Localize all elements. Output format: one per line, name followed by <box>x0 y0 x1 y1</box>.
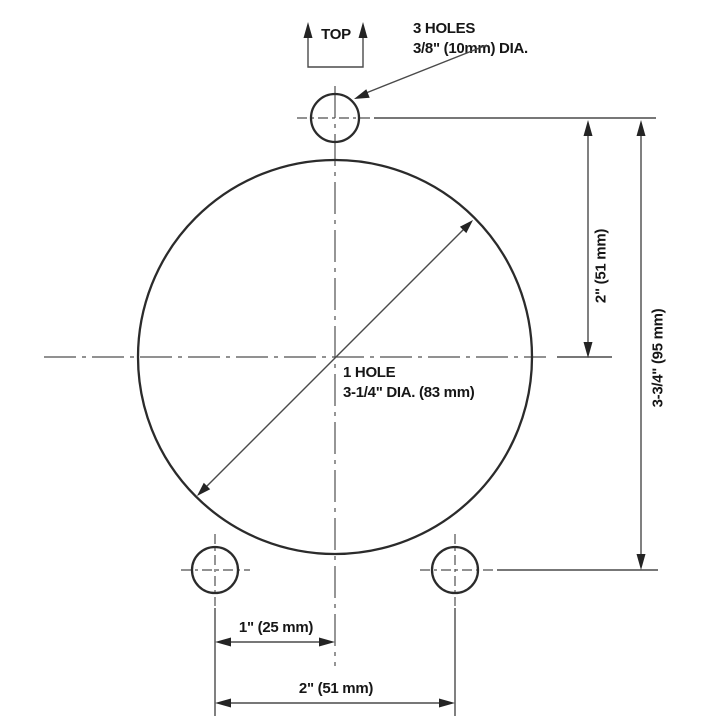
technical-drawing-page: TOP 3 HOLES 3/8" (10mm) DIA. 1 HOLE 3-1/… <box>0 0 720 720</box>
dim-label-horizontal-outer: 2" (51 mm) <box>299 680 373 697</box>
center-callout-line2: 3-1/4" DIA. (83 mm) <box>343 384 475 401</box>
dim-arrow-right-inner-icon <box>319 638 335 647</box>
dim-arrow-up-outer-icon <box>637 120 646 136</box>
leader-arrow-icon <box>354 89 370 99</box>
dim-arrow-up-inner-icon <box>584 120 593 136</box>
top-right-arrow-icon <box>359 22 368 38</box>
drilling-template-diagram: TOP 3 HOLES 3/8" (10mm) DIA. 1 HOLE 3-1/… <box>0 0 720 720</box>
top-left-arrow-icon <box>304 22 313 38</box>
centerlines <box>44 86 546 666</box>
dim-arrow-left-outer-icon <box>215 699 231 708</box>
top-label: TOP <box>321 26 351 43</box>
dim-arrow-right-outer-icon <box>439 699 455 708</box>
dim-label-vertical-outer: 3-3/4" (95 mm) <box>649 308 666 407</box>
dim-arrow-left-inner-icon <box>215 638 231 647</box>
dim-label-horizontal-inner: 1" (25 mm) <box>239 619 313 636</box>
small-holes-callout-line1: 3 HOLES <box>413 20 475 37</box>
center-callout-line1: 1 HOLE <box>343 364 396 381</box>
top-orientation-marker: TOP <box>304 22 368 67</box>
dim-arrow-down-outer-icon <box>637 554 646 570</box>
small-holes-callout: 3 HOLES 3/8" (10mm) DIA. <box>354 20 528 99</box>
dim-label-vertical-inner: 2" (51 mm) <box>592 229 609 303</box>
small-holes-callout-line2: 3/8" (10mm) DIA. <box>413 40 528 57</box>
center-hole-callout: 1 HOLE 3-1/4" DIA. (83 mm) <box>343 364 475 401</box>
vertical-dimensions: 2" (51 mm) 3-3/4" (95 mm) <box>374 118 666 570</box>
dim-arrow-down-inner-icon <box>584 342 593 358</box>
